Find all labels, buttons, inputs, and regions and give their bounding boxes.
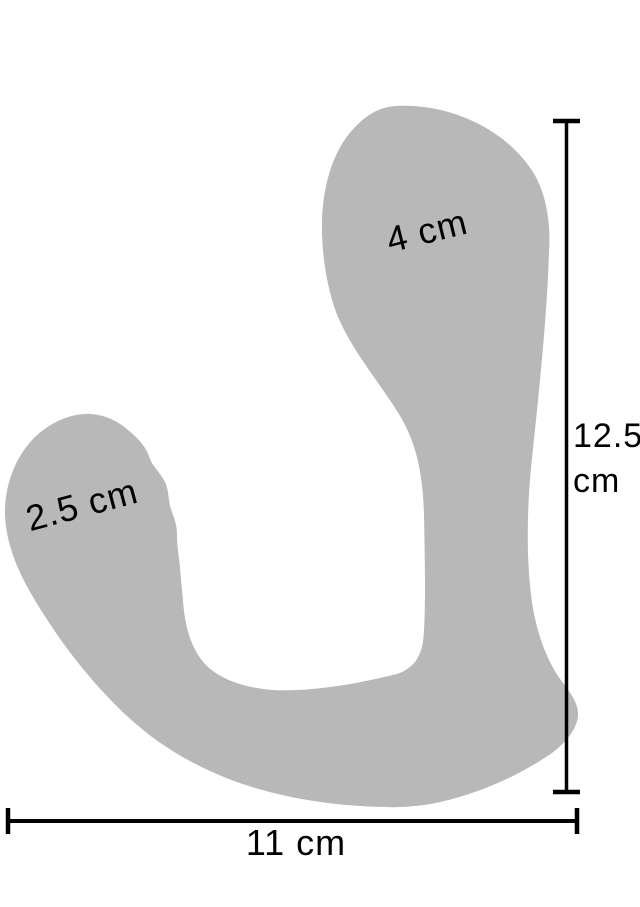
height-label: 12.5 cm xyxy=(573,414,640,504)
diagram-canvas xyxy=(0,0,640,907)
product-silhouette xyxy=(5,106,578,807)
total-width-label: 11 cm xyxy=(246,822,346,864)
height-value: 12.5 xyxy=(573,414,640,459)
height-unit: cm xyxy=(573,459,640,504)
dimension-diagram: 4 cm 2.5 cm 12.5 cm 11 cm xyxy=(0,0,640,907)
